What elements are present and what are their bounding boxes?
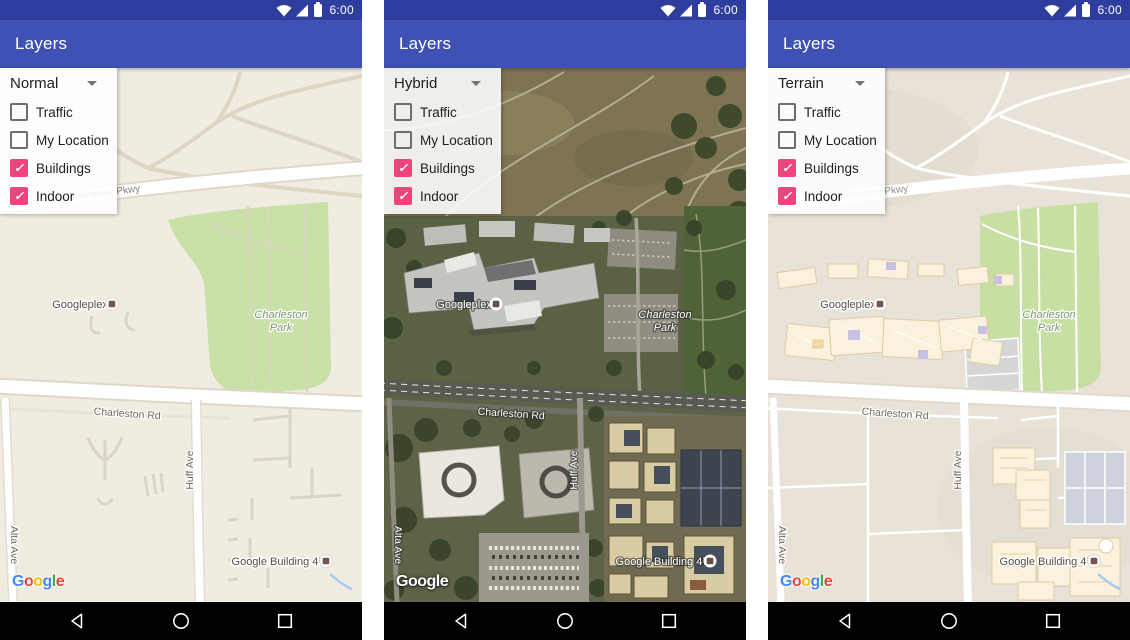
back-button[interactable] [451, 611, 471, 631]
back-icon [68, 612, 86, 630]
battery-icon [698, 4, 706, 17]
road-huff-ave [196, 400, 200, 602]
wifi-icon [660, 4, 676, 17]
checkbox-buildings[interactable]: ✓ [394, 159, 412, 177]
street-label-huff-ave: Huff Ave [184, 450, 196, 489]
checkbox-indoor[interactable]: ✓ [394, 187, 412, 205]
home-button[interactable] [939, 611, 959, 631]
status-bar: 6:00 [768, 0, 1130, 20]
layers-panel: Hybrid ✓ Traffic ✓ My Location ✓ Buildin… [384, 68, 501, 214]
check-icon: ✓ [14, 162, 24, 174]
map-type-dropdown[interactable]: Hybrid [384, 68, 501, 98]
map-type-value: Terrain [778, 75, 824, 92]
nav-bar [384, 602, 746, 640]
home-icon [556, 612, 574, 630]
chevron-down-icon [471, 81, 481, 86]
checkbox-label: Buildings [420, 161, 475, 176]
checkbox-row-buildings[interactable]: ✓ Buildings [384, 154, 501, 182]
check-icon: ✓ [14, 190, 24, 202]
checkbox-traffic[interactable]: ✓ [394, 103, 412, 121]
recents-icon [1044, 612, 1062, 630]
map-type-value: Hybrid [394, 75, 437, 92]
app-bar: Layers [768, 20, 1130, 68]
street-label-alta-ave: Alta Ave [8, 526, 20, 564]
check-icon: ✓ [782, 162, 792, 174]
check-icon: ✓ [782, 190, 792, 202]
signal-icon [679, 4, 693, 17]
checkbox-buildings[interactable]: ✓ [778, 159, 796, 177]
map-label-charleston-park-2: Park [1038, 322, 1061, 334]
checkbox-row-traffic[interactable]: ✓ Traffic [384, 98, 501, 126]
map-label-google-building-47: Google Building 47 [232, 556, 325, 568]
map-label-charleston-park-1: Charleston [254, 309, 307, 321]
checkbox-row-indoor[interactable]: ✓ Indoor [768, 182, 885, 210]
back-icon [836, 612, 854, 630]
app-bar-title: Layers [783, 34, 835, 54]
checkbox-row-traffic[interactable]: ✓ Traffic [0, 98, 117, 126]
chevron-down-icon [855, 81, 865, 86]
google-logo: Google [12, 573, 64, 591]
checkbox-row-buildings[interactable]: ✓ Buildings [0, 154, 117, 182]
signal-icon [1063, 4, 1077, 17]
back-button[interactable] [67, 611, 87, 631]
street-label-alta-ave: Alta Ave [776, 526, 788, 564]
checkbox-row-traffic[interactable]: ✓ Traffic [768, 98, 885, 126]
app-bar-title: Layers [399, 34, 451, 54]
map-type-value: Normal [10, 75, 58, 92]
recents-button[interactable] [275, 611, 295, 631]
battery-icon [314, 4, 322, 17]
road-huff-ave [580, 398, 584, 602]
street-label-alta-ave: Alta Ave [392, 526, 404, 564]
checkbox-row-my-location[interactable]: ✓ My Location [0, 126, 117, 154]
app-bar: Layers [0, 20, 362, 68]
checkbox-label: My Location [36, 133, 109, 148]
checkbox-label: Traffic [420, 105, 457, 120]
checkbox-label: Traffic [804, 105, 841, 120]
phone-screen-normal: Amphitheatre Pkwy [0, 0, 362, 640]
street-label-huff-ave: Huff Ave [952, 450, 964, 489]
checkbox-label: Indoor [420, 189, 458, 204]
layers-panel: Normal ✓ Traffic ✓ My Location ✓ Buildin… [0, 68, 117, 214]
checkbox-row-indoor[interactable]: ✓ Indoor [384, 182, 501, 210]
checkbox-my-location[interactable]: ✓ [778, 131, 796, 149]
map-label-charleston-park-2: Park [270, 322, 293, 334]
recents-icon [276, 612, 294, 630]
screenshot-root: Amphitheatre Pkwy [0, 0, 1130, 640]
checkbox-indoor[interactable]: ✓ [778, 187, 796, 205]
phone-screen-terrain: Amphitheatre Pkwy [768, 0, 1130, 640]
checkbox-row-my-location[interactable]: ✓ My Location [384, 126, 501, 154]
checkbox-row-buildings[interactable]: ✓ Buildings [768, 154, 885, 182]
map-label-charleston-park-1: Charleston [1022, 309, 1075, 321]
checkbox-label: My Location [420, 133, 493, 148]
checkbox-label: Buildings [804, 161, 859, 176]
wifi-icon [276, 4, 292, 17]
map-type-dropdown[interactable]: Terrain [768, 68, 885, 98]
checkbox-indoor[interactable]: ✓ [10, 187, 28, 205]
phone-screen-hybrid: Googleplex Charleston Park Charleston Rd… [384, 0, 746, 640]
check-icon: ✓ [398, 190, 408, 202]
checkbox-row-indoor[interactable]: ✓ Indoor [0, 182, 117, 210]
map-label-charleston-park-1: Charleston [638, 309, 691, 321]
recents-icon [660, 612, 678, 630]
map-label-google-building-47: Google Building 47 [616, 556, 709, 568]
google-logo: Google [396, 573, 448, 591]
status-bar: 6:00 [384, 0, 746, 20]
checkbox-buildings[interactable]: ✓ [10, 159, 28, 177]
google-logo: Google [780, 573, 832, 591]
checkbox-row-my-location[interactable]: ✓ My Location [768, 126, 885, 154]
status-time: 6:00 [329, 3, 354, 17]
map-label-googleplex: Googleplex [52, 299, 108, 311]
building-white-1 [419, 446, 504, 518]
nav-bar [768, 602, 1130, 640]
layers-panel: Terrain ✓ Traffic ✓ My Location ✓ Buildi… [768, 68, 885, 214]
recents-button[interactable] [1043, 611, 1063, 631]
checkbox-label: Traffic [36, 105, 73, 120]
chevron-down-icon [87, 81, 97, 86]
back-icon [452, 612, 470, 630]
signal-icon [295, 4, 309, 17]
status-bar: 6:00 [0, 0, 362, 20]
checkbox-label: Indoor [36, 189, 74, 204]
road-huff-ave [964, 400, 968, 602]
parking-north [607, 228, 677, 270]
checkbox-my-location[interactable]: ✓ [10, 131, 28, 149]
checkbox-traffic[interactable]: ✓ [10, 103, 28, 121]
checkbox-label: Buildings [36, 161, 91, 176]
checkbox-traffic[interactable]: ✓ [778, 103, 796, 121]
status-time: 6:00 [713, 3, 738, 17]
map-type-dropdown[interactable]: Normal [0, 68, 117, 98]
map-label-googleplex: Googleplex [436, 299, 492, 311]
map-label-googleplex: Googleplex [820, 299, 876, 311]
back-button[interactable] [835, 611, 855, 631]
home-icon [940, 612, 958, 630]
home-button[interactable] [555, 611, 575, 631]
wifi-icon [1044, 4, 1060, 17]
check-icon: ✓ [398, 162, 408, 174]
checkbox-my-location[interactable]: ✓ [394, 131, 412, 149]
nav-bar [0, 602, 362, 640]
recents-button[interactable] [659, 611, 679, 631]
app-bar-title: Layers [15, 34, 67, 54]
checkbox-label: My Location [804, 133, 877, 148]
street-label-huff-ave: Huff Ave [568, 450, 580, 489]
battery-icon [1082, 4, 1090, 17]
home-button[interactable] [171, 611, 191, 631]
app-bar: Layers [384, 20, 746, 68]
checkbox-label: Indoor [804, 189, 842, 204]
map-label-charleston-park-2: Park [654, 322, 677, 334]
status-time: 6:00 [1097, 3, 1122, 17]
map-label-google-building-47: Google Building 47 [1000, 556, 1093, 568]
home-icon [172, 612, 190, 630]
